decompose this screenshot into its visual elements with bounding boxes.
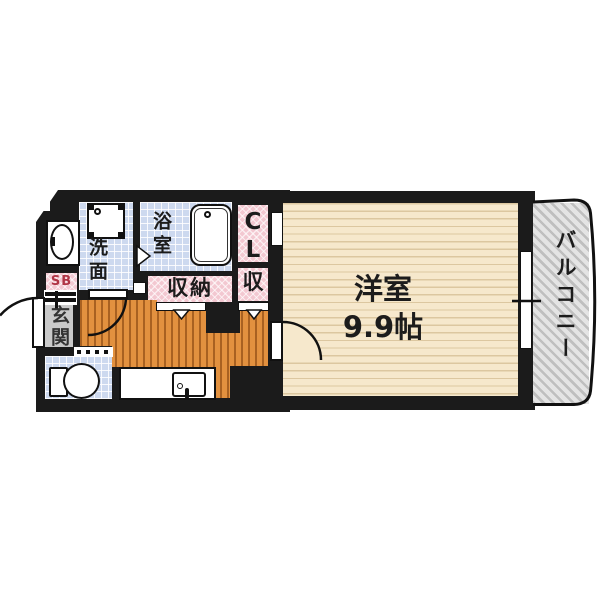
- western-room-label: 洋室 9.9帖: [303, 270, 463, 346]
- washroom-door-arc: [88, 297, 126, 335]
- washroom-label: 洗面: [87, 237, 106, 285]
- storage-door-notch: [174, 310, 189, 319]
- bathroom-label: 浴室: [151, 211, 170, 259]
- entrance-label: 玄関: [49, 305, 68, 349]
- storage-label: 収納: [148, 278, 232, 299]
- storage-small-door-notch: [247, 310, 261, 319]
- plan-line-overlay: [0, 0, 600, 600]
- sink-drain: [177, 383, 183, 389]
- bathroom-door-marker: [137, 246, 150, 266]
- storage-small-label: 収: [238, 272, 268, 293]
- closet-cl-label: CL: [241, 209, 264, 265]
- western-room-name: 洋室: [303, 270, 463, 308]
- entrance-door-arc: [0, 298, 38, 316]
- sink-faucet: [185, 388, 189, 399]
- floorplan: 洋室 9.9帖 バルコニー 洗面 浴室 CL 収納 収 玄関 SB: [0, 0, 600, 600]
- shoe-box-label: SB: [46, 275, 77, 288]
- western-room-size: 9.9帖: [303, 308, 463, 346]
- balcony-label: バルコニー: [554, 229, 575, 364]
